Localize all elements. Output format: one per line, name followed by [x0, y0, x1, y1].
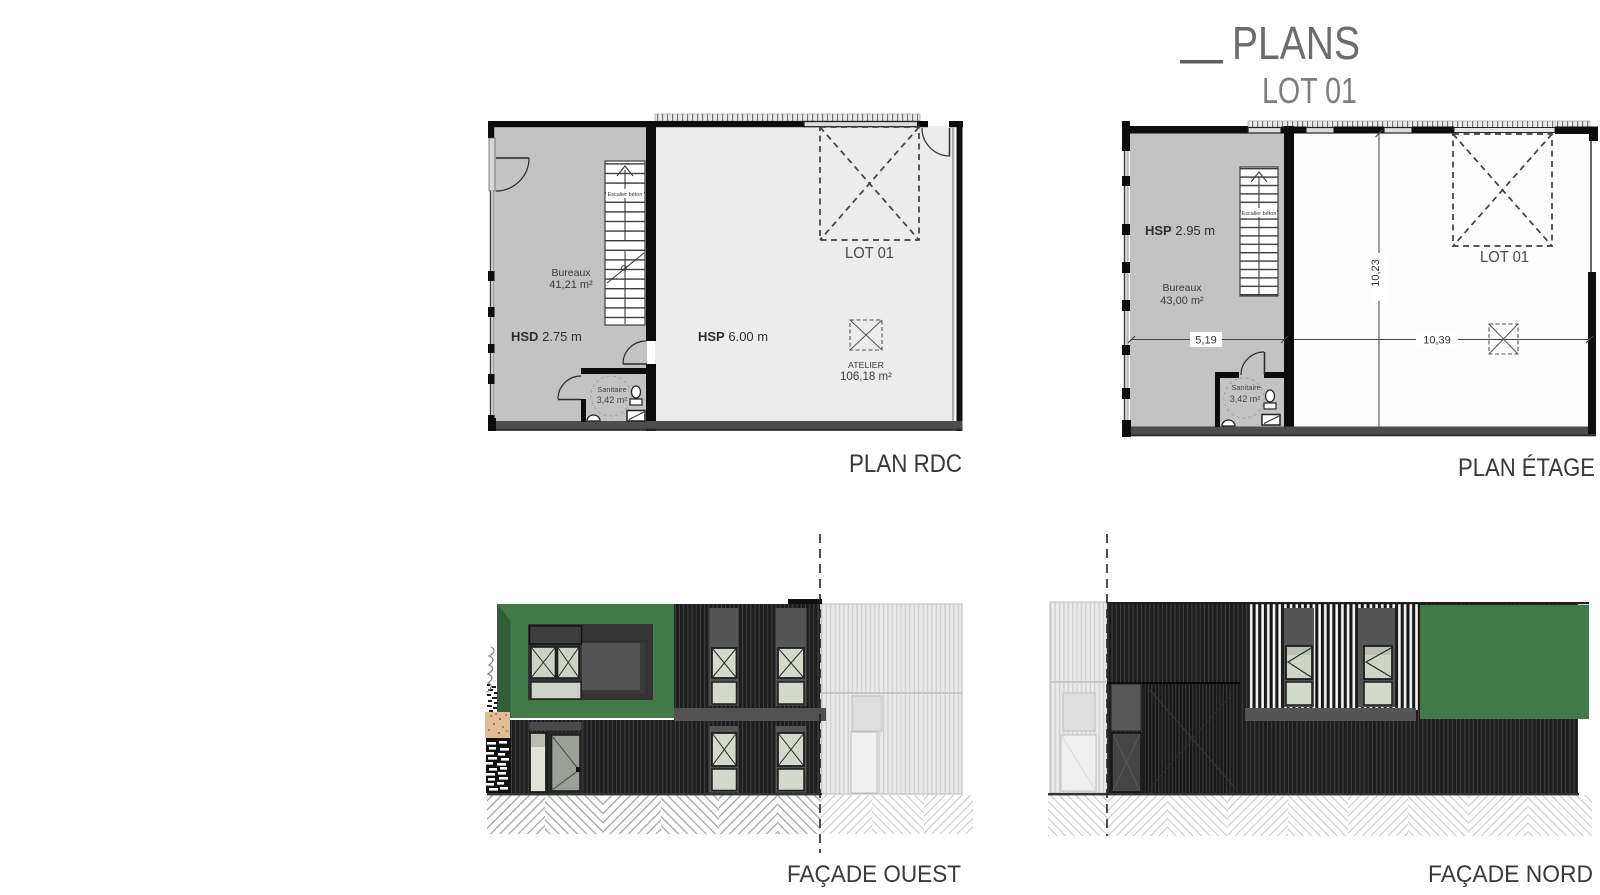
svg-text:Bureaux: Bureaux: [1162, 282, 1202, 294]
svg-text:ATELIER: ATELIER: [848, 360, 884, 370]
svg-text:LOT 01: LOT 01: [1480, 249, 1529, 266]
svg-text:106,18 m²: 106,18 m²: [840, 371, 892, 383]
svg-text:LOT 01: LOT 01: [845, 245, 894, 262]
svg-text:5,19: 5,19: [1195, 335, 1216, 347]
svg-text:3,42 m²: 3,42 m²: [597, 395, 628, 405]
svg-text:Sanitaire: Sanitaire: [597, 385, 627, 394]
svg-text:3,42 m²: 3,42 m²: [1230, 394, 1261, 404]
svg-text:LOT 01: LOT 01: [1262, 70, 1357, 111]
svg-text:FAÇADE OUEST: FAÇADE OUEST: [787, 861, 961, 888]
svg-text:41,21 m²: 41,21 m²: [549, 279, 593, 291]
svg-text:Escalier béton: Escalier béton: [608, 192, 643, 198]
svg-text:10,23: 10,23: [1370, 259, 1382, 287]
svg-text:Bureaux: Bureaux: [551, 267, 591, 279]
svg-text:10,39: 10,39: [1423, 335, 1451, 347]
svg-text:HSP 2.95 m: HSP 2.95 m: [1145, 223, 1215, 238]
svg-text:PLANS: PLANS: [1232, 17, 1360, 69]
svg-text:FAÇADE NORD: FAÇADE NORD: [1428, 861, 1593, 888]
svg-text:HSP 6.00 m: HSP 6.00 m: [698, 329, 768, 344]
svg-text:PLAN ÉTAGE: PLAN ÉTAGE: [1458, 453, 1595, 482]
svg-text:Sanitaire: Sanitaire: [1231, 383, 1261, 392]
svg-text:HSD 2.75 m: HSD 2.75 m: [511, 329, 582, 344]
svg-text:43,00 m²: 43,00 m²: [1160, 295, 1204, 307]
svg-text:Escalier béton: Escalier béton: [1242, 211, 1277, 217]
svg-text:PLAN RDC: PLAN RDC: [849, 450, 962, 478]
